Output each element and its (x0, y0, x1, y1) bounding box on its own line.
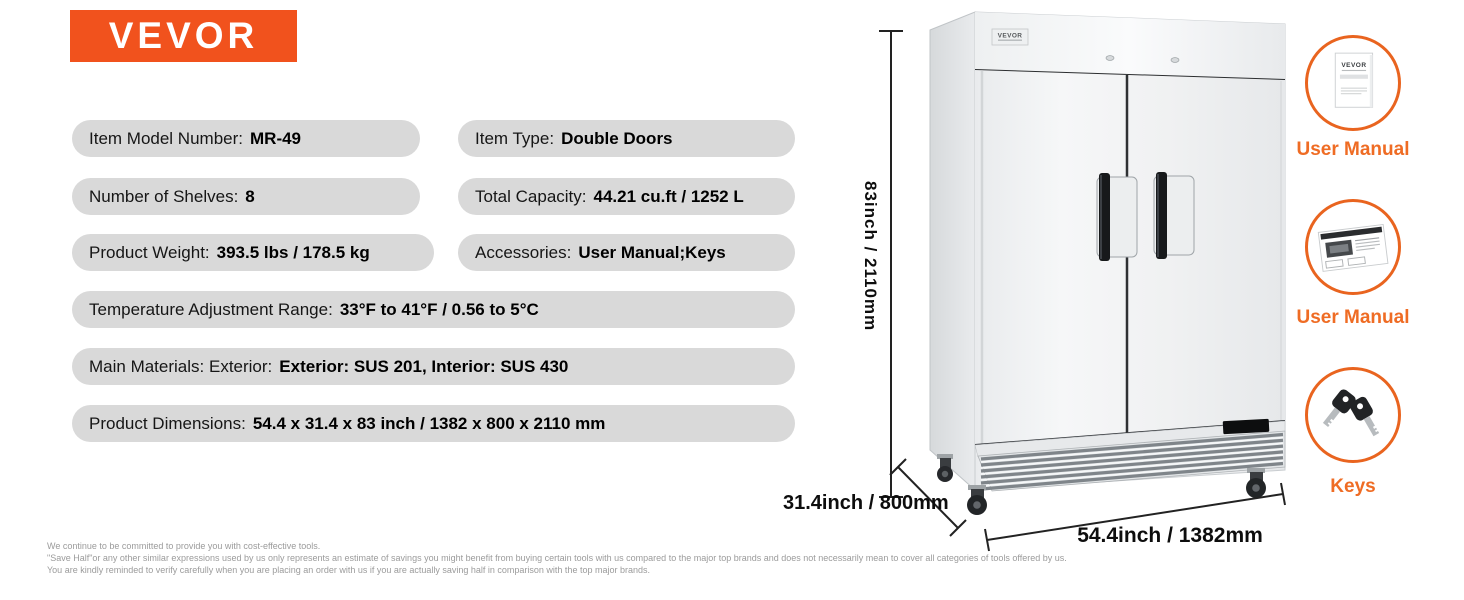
spec-pill-weight: Product Weight: 393.5 lbs / 178.5 kg (72, 234, 434, 271)
fridge-brand-badge: VEVOR (992, 29, 1028, 45)
spec-pill-product-dimensions: Product Dimensions: 54.4 x 31.4 x 83 inc… (72, 405, 795, 442)
spec-value: 393.5 lbs / 178.5 kg (217, 243, 370, 263)
accessory-circle-keys (1305, 367, 1401, 463)
spec-label: Main Materials: Exterior: (89, 357, 272, 377)
keys-icon (1311, 373, 1395, 457)
spec-pill-model-number: Item Model Number: MR-49 (72, 120, 420, 157)
footnote-line: You are kindly reminded to verify carefu… (47, 564, 1067, 576)
spec-label: Temperature Adjustment Range: (89, 300, 333, 320)
footnotes: We continue to be committed to provide y… (47, 540, 1067, 576)
manual-title-text: VEVOR (1341, 62, 1366, 69)
spec-label: Accessories: (475, 243, 571, 263)
right-door-handle (1154, 172, 1194, 259)
spec-pill-item-type: Item Type: Double Doors (458, 120, 795, 157)
spec-value: Exterior: SUS 201, Interior: SUS 430 (279, 357, 568, 377)
spec-label: Item Type: (475, 129, 554, 149)
fridge-body: VEVOR (930, 12, 1285, 515)
fridge-side-panel (930, 12, 975, 490)
footnote-line: "Save Half"or any other similar expressi… (47, 552, 1067, 564)
vevor-logo-text: VEVOR (109, 15, 259, 57)
spec-value: 54.4 x 31.4 x 83 inch / 1382 x 800 x 211… (253, 414, 606, 434)
accessory-label-keys: Keys (1275, 476, 1431, 498)
footnote-line: We continue to be committed to provide y… (47, 540, 1067, 552)
accessory-label-user-manual-2: User Manual (1275, 307, 1431, 329)
accessory-label-user-manual-1: User Manual (1275, 139, 1431, 161)
caster-front-left (967, 485, 987, 515)
caster-rear-left (937, 454, 953, 482)
left-door-handle (1097, 173, 1137, 261)
spec-label: Product Dimensions: (89, 414, 246, 434)
spec-value: MR-49 (250, 129, 301, 149)
depth-dimension-label: 31.4inch / 800mm (783, 492, 947, 515)
spec-value: User Manual;Keys (578, 243, 725, 263)
accessory-circle-user-manual-1: VEVOR (1305, 35, 1401, 131)
spec-label: Number of Shelves: (89, 187, 238, 207)
spec-value: 44.21 cu.ft / 1252 L (594, 187, 744, 207)
spec-pill-capacity: Total Capacity: 44.21 cu.ft / 1252 L (458, 178, 795, 215)
spec-pill-shelves: Number of Shelves: 8 (72, 178, 420, 215)
refrigerator-illustration: VEVOR (860, 0, 1300, 560)
fridge-header-panel (975, 12, 1285, 80)
vevor-logo: VEVOR (70, 10, 297, 62)
spec-pill-materials: Main Materials: Exterior: Exterior: SUS … (72, 348, 795, 385)
product-infographic: VEVOR Item Model Number: MR-49 Item Type… (0, 0, 1464, 600)
width-dimension-label: 54.4inch / 1382mm (1062, 524, 1278, 548)
spec-pill-temperature-range: Temperature Adjustment Range: 33°F to 41… (72, 291, 795, 328)
spec-label: Product Weight: (89, 243, 210, 263)
caster-front-right (1246, 468, 1266, 498)
fridge-doors (975, 70, 1285, 446)
accessory-circle-user-manual-2 (1305, 199, 1401, 295)
temperature-display (1223, 419, 1270, 434)
spec-label: Total Capacity: (475, 187, 587, 207)
spec-pill-accessories: Accessories: User Manual;Keys (458, 234, 795, 271)
manual-booklet-icon: VEVOR (1311, 41, 1395, 125)
fridge-badge-text: VEVOR (998, 33, 1023, 40)
height-dimension-label: 83inch / 2110mm (854, 160, 886, 352)
hinge-screw-icon (1171, 58, 1179, 63)
hinge-screw-icon (1106, 56, 1114, 61)
manual-sheet-icon (1311, 205, 1395, 289)
spec-value: 8 (245, 187, 254, 207)
spec-value: Double Doors (561, 129, 672, 149)
spec-label: Item Model Number: (89, 129, 243, 149)
spec-value: 33°F to 41°F / 0.56 to 5°C (340, 300, 539, 320)
